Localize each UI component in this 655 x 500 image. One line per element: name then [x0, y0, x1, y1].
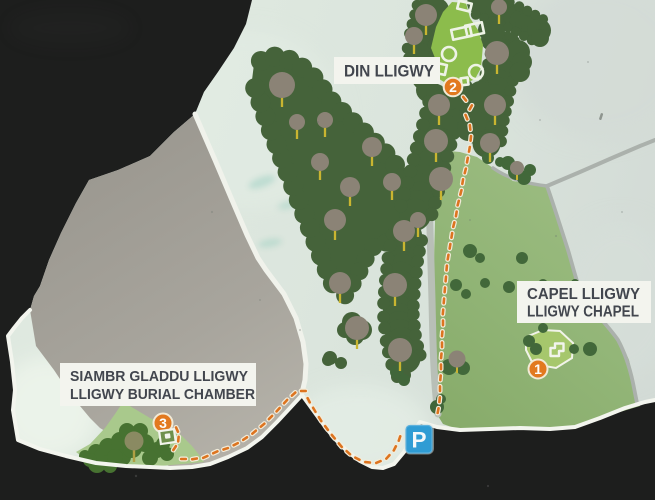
svg-text:P: P	[411, 428, 426, 453]
svg-text:3: 3	[159, 415, 167, 431]
svg-text:2: 2	[449, 79, 457, 95]
svg-text:LLIGWY CHAPEL: LLIGWY CHAPEL	[527, 304, 639, 321]
svg-text:LLIGWY BURIAL CHAMBER: LLIGWY BURIAL CHAMBER	[70, 386, 255, 403]
svg-text:SIAMBR GLADDU LLIGWY: SIAMBR GLADDU LLIGWY	[70, 368, 248, 385]
svg-text:DIN LLIGWY: DIN LLIGWY	[344, 62, 434, 80]
svg-text:CAPEL LLIGWY: CAPEL LLIGWY	[527, 286, 640, 303]
svg-text:1: 1	[534, 361, 542, 377]
